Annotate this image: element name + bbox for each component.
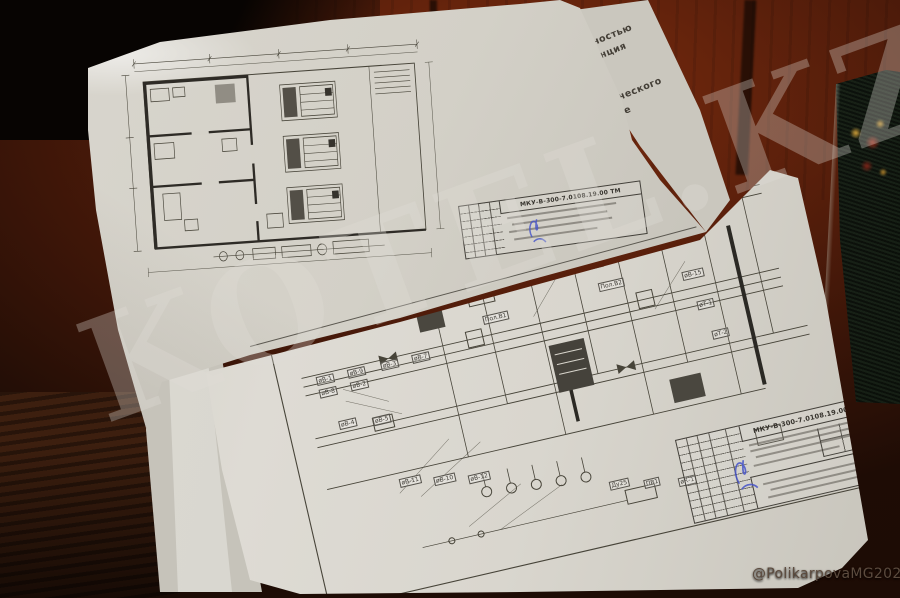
photo-of-engineering-drawings: øВ-1 øВ-9 øВ-8 øВ-2 øВ-3 øВ-7 øВ-4 øВ-5 … (0, 0, 900, 598)
grid-line (697, 436, 717, 518)
photo-credit: @PolikarpovaMG2020 (752, 566, 900, 582)
